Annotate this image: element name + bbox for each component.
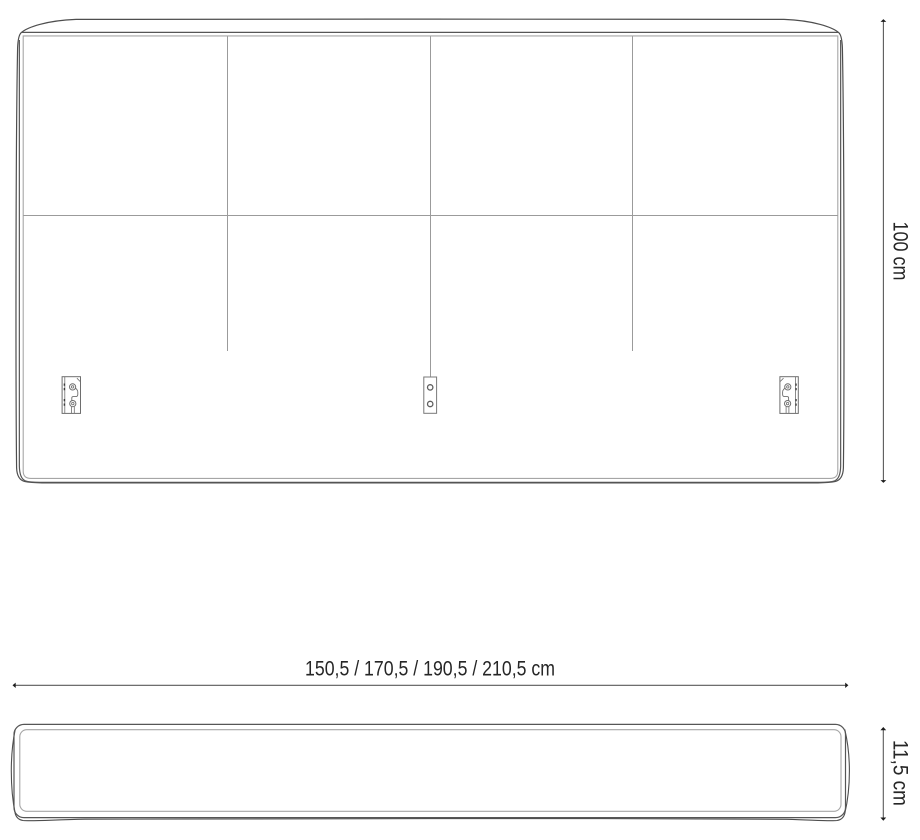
- svg-text:11,5 cm: 11,5 cm: [889, 740, 912, 806]
- svg-text:150,5 / 170,5 / 190,5 / 210,5: 150,5 / 170,5 / 190,5 / 210,5 cm: [305, 657, 555, 680]
- svg-text:100 cm: 100 cm: [889, 222, 912, 281]
